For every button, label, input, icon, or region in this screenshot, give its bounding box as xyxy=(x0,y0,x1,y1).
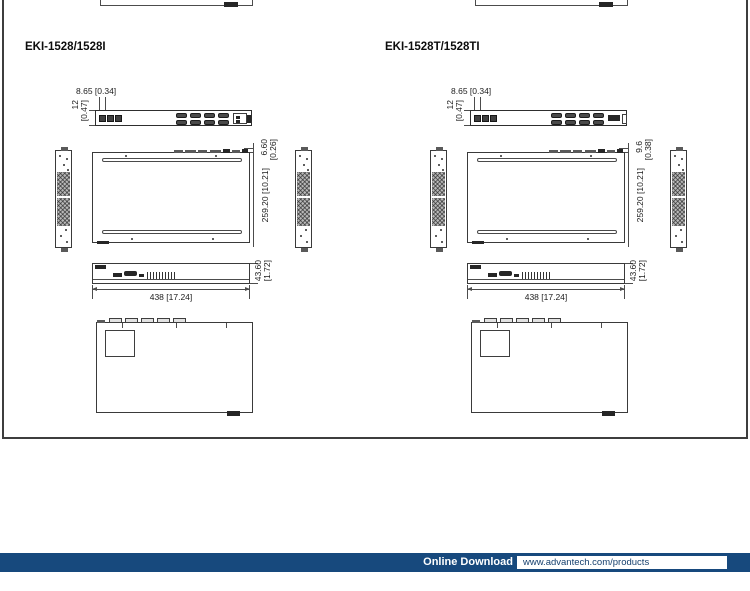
cutoff-left-edge xyxy=(475,0,476,5)
connector-bump xyxy=(617,149,623,153)
screw-hole xyxy=(131,238,133,240)
dim-depth: 259.20 [10.21] xyxy=(261,168,270,222)
mount-tab xyxy=(301,248,308,252)
screw-hole xyxy=(63,164,65,166)
screw-hole xyxy=(681,241,683,243)
dim-tick xyxy=(244,148,254,149)
connector-bump xyxy=(210,150,221,153)
cutoff-connector xyxy=(599,2,613,7)
cutoff-right-edge xyxy=(252,0,253,5)
label-area xyxy=(480,330,510,357)
screw-hole xyxy=(441,241,443,243)
label-mark xyxy=(97,241,109,244)
brand-logo xyxy=(470,265,481,269)
ethernet-port xyxy=(115,115,122,122)
db9-connector xyxy=(565,113,576,118)
vent-grille xyxy=(432,198,445,226)
dim-tick xyxy=(250,152,254,153)
cutoff-right-edge xyxy=(627,0,628,5)
panel-tick xyxy=(551,323,552,328)
bottom-view xyxy=(96,322,253,413)
section-eki-1528t: EKI-1528T/1528TI 8.65 [0.34] 12 [0.47] xyxy=(375,0,750,470)
screw-hole xyxy=(299,155,301,157)
dim-front-height-in: [0.47] xyxy=(455,100,464,121)
dim-arrow xyxy=(620,287,625,291)
db9-connector xyxy=(579,120,590,125)
panel-tick xyxy=(176,323,177,328)
led-cluster xyxy=(514,274,519,277)
front-panel-view xyxy=(470,110,627,126)
screw-hole xyxy=(442,169,444,171)
connector-bump xyxy=(174,150,183,153)
bezel-line xyxy=(468,279,624,280)
datasheet-page: EKI-1528/1528I 8.65 [0.34] 12 [0.47] xyxy=(0,0,750,591)
panel-tick xyxy=(497,323,498,328)
front-panel-view xyxy=(95,110,252,126)
top-view xyxy=(92,152,250,243)
connector-bump xyxy=(598,149,605,153)
dim-height-in: [1.72] xyxy=(638,260,647,281)
db9-connector xyxy=(190,120,201,125)
screw-hole xyxy=(440,229,442,231)
connector-bump xyxy=(173,318,186,323)
screw-hole xyxy=(681,158,683,160)
panel-tick xyxy=(122,323,123,328)
screw-hole xyxy=(675,235,677,237)
db9-connector xyxy=(551,120,562,125)
db9-connector xyxy=(218,113,229,118)
screw-hole xyxy=(682,169,684,171)
vent-grille xyxy=(57,172,70,196)
dim-depth: 259.20 [10.21] xyxy=(636,168,645,222)
ethernet-port xyxy=(474,115,481,122)
bezel-line xyxy=(93,279,249,280)
screw-hole xyxy=(500,155,502,157)
dim-arrow xyxy=(467,287,472,291)
dim-height-in: [1.72] xyxy=(263,260,272,281)
dim-line xyxy=(92,289,250,290)
db9-connector xyxy=(190,113,201,118)
led-array xyxy=(522,272,552,279)
connector-bump xyxy=(585,150,596,153)
dim-line xyxy=(467,289,625,290)
label-area xyxy=(105,330,135,357)
mount-tab xyxy=(676,147,683,151)
screw-hole xyxy=(215,155,217,157)
connector-bump xyxy=(185,150,196,153)
connector-bump xyxy=(242,149,248,153)
screw-hole xyxy=(66,158,68,160)
side-view-left xyxy=(55,150,72,248)
dim-extension-line xyxy=(105,97,106,110)
mount-tab xyxy=(301,147,308,151)
db9-connector xyxy=(176,113,187,118)
side-view-right xyxy=(295,150,312,248)
connector-bump xyxy=(549,150,558,153)
bottom-view xyxy=(471,322,628,413)
led-array xyxy=(147,272,177,279)
mount-tab xyxy=(676,248,683,252)
screw-hole xyxy=(59,155,61,157)
connector-bump xyxy=(125,318,138,323)
screw-hole xyxy=(303,164,305,166)
front-view xyxy=(467,263,625,284)
section-title: EKI-1528/1528I xyxy=(25,41,106,53)
bottom-connector xyxy=(227,411,240,416)
vent-slot xyxy=(477,230,617,234)
dim-arrow xyxy=(92,287,97,291)
dim-width: 438 [17.24] xyxy=(467,292,625,302)
power-pin xyxy=(236,120,240,123)
connector-bump xyxy=(141,318,154,323)
connector-bump xyxy=(157,318,170,323)
connector-bump xyxy=(472,320,480,323)
screw-hole xyxy=(212,238,214,240)
vent-slot xyxy=(102,158,242,162)
ethernet-port xyxy=(99,115,106,122)
dim-extension-line xyxy=(628,143,629,247)
connector-bump xyxy=(573,150,582,153)
db9-connector xyxy=(579,113,590,118)
vent-grille xyxy=(432,172,445,196)
connector-bump xyxy=(223,149,230,153)
screw-hole xyxy=(438,164,440,166)
mount-tab xyxy=(61,147,68,151)
led-cluster xyxy=(139,274,144,277)
vent-slot xyxy=(102,230,242,234)
screw-hole xyxy=(678,164,680,166)
footer-url-box: www.advantech.com/products xyxy=(517,556,727,569)
cutoff-left-edge xyxy=(100,0,101,5)
mount-tab xyxy=(61,248,68,252)
screw-hole xyxy=(300,235,302,237)
screw-hole xyxy=(506,238,508,240)
dim-front-height-in: [0.47] xyxy=(80,100,89,121)
screw-hole xyxy=(60,235,62,237)
mount-tab xyxy=(436,147,443,151)
terminal-block xyxy=(608,115,620,121)
connector-bump xyxy=(548,318,561,323)
footer-url: www.advantech.com/products xyxy=(517,556,727,569)
screw-hole xyxy=(307,169,309,171)
cutoff-connector xyxy=(224,2,238,7)
screw-hole xyxy=(306,241,308,243)
dim-rear-clearance-in: [0.26] xyxy=(269,139,278,160)
brand-logo xyxy=(95,265,106,269)
screw-hole xyxy=(674,155,676,157)
led-cluster xyxy=(124,271,137,276)
db9-connector xyxy=(204,113,215,118)
led-cluster xyxy=(113,273,122,277)
power-inlet xyxy=(233,113,247,124)
vent-grille xyxy=(672,172,685,196)
dim-tick xyxy=(625,152,629,153)
power-switch xyxy=(247,115,251,123)
connector-bump xyxy=(607,150,615,153)
vent-grille xyxy=(672,198,685,226)
mount-tab xyxy=(436,248,443,252)
connector-bump xyxy=(198,150,207,153)
dim-tick xyxy=(619,148,629,149)
side-view-right xyxy=(670,150,687,248)
side-view-left xyxy=(430,150,447,248)
panel-tick xyxy=(226,323,227,328)
dim-tick xyxy=(250,283,258,284)
db9-connector xyxy=(204,120,215,125)
dim-extension-line xyxy=(480,97,481,110)
ethernet-port xyxy=(490,115,497,122)
section-eki-1528: EKI-1528/1528I 8.65 [0.34] 12 [0.47] xyxy=(0,0,375,470)
db9-connector xyxy=(593,113,604,118)
screw-hole xyxy=(590,155,592,157)
vent-slot xyxy=(477,158,617,162)
db9-connector xyxy=(565,120,576,125)
screw-hole xyxy=(65,229,67,231)
ethernet-port xyxy=(107,115,114,122)
vent-grille xyxy=(57,198,70,226)
dim-arrow xyxy=(245,287,250,291)
screw-hole xyxy=(306,158,308,160)
screw-hole xyxy=(66,241,68,243)
screw-hole xyxy=(125,155,127,157)
db9-connector xyxy=(176,120,187,125)
screw-hole xyxy=(680,229,682,231)
screw-hole xyxy=(434,155,436,157)
connector-bump xyxy=(560,150,571,153)
panel-tick xyxy=(601,323,602,328)
connector-bump xyxy=(500,318,513,323)
db9-connector xyxy=(218,120,229,125)
vent-grille xyxy=(297,172,310,196)
front-view xyxy=(92,263,250,284)
dim-mount-offset: 8.65 [0.34] xyxy=(451,86,491,96)
top-view xyxy=(467,152,625,243)
screw-hole xyxy=(435,235,437,237)
connector-bump xyxy=(109,318,122,323)
db9-connector xyxy=(551,113,562,118)
connector-bump xyxy=(97,320,105,323)
vent-grille xyxy=(297,198,310,226)
dim-mount-offset: 8.65 [0.34] xyxy=(76,86,116,96)
led-cluster xyxy=(499,271,512,276)
db9-connector xyxy=(593,120,604,125)
section-title: EKI-1528T/1528TI xyxy=(385,41,480,53)
connector-bump xyxy=(232,150,240,153)
bottom-connector xyxy=(602,411,615,416)
screw-hole xyxy=(67,169,69,171)
power-pin xyxy=(236,116,240,119)
connector-bump xyxy=(516,318,529,323)
dim-extension-line xyxy=(253,143,254,247)
connector-bump xyxy=(532,318,545,323)
ethernet-port xyxy=(482,115,489,122)
screw-hole xyxy=(441,158,443,160)
dim-extension-line xyxy=(99,97,100,110)
dim-tick xyxy=(625,283,633,284)
dim-extension-line xyxy=(474,97,475,110)
dim-width: 438 [17.24] xyxy=(92,292,250,302)
footer-label: Online Download xyxy=(423,553,513,572)
screw-hole xyxy=(305,229,307,231)
power-switch xyxy=(622,114,627,124)
label-mark xyxy=(472,241,484,244)
screw-hole xyxy=(587,238,589,240)
led-cluster xyxy=(488,273,497,277)
dim-rear-clearance-in: [0.38] xyxy=(644,139,653,160)
connector-bump xyxy=(484,318,497,323)
